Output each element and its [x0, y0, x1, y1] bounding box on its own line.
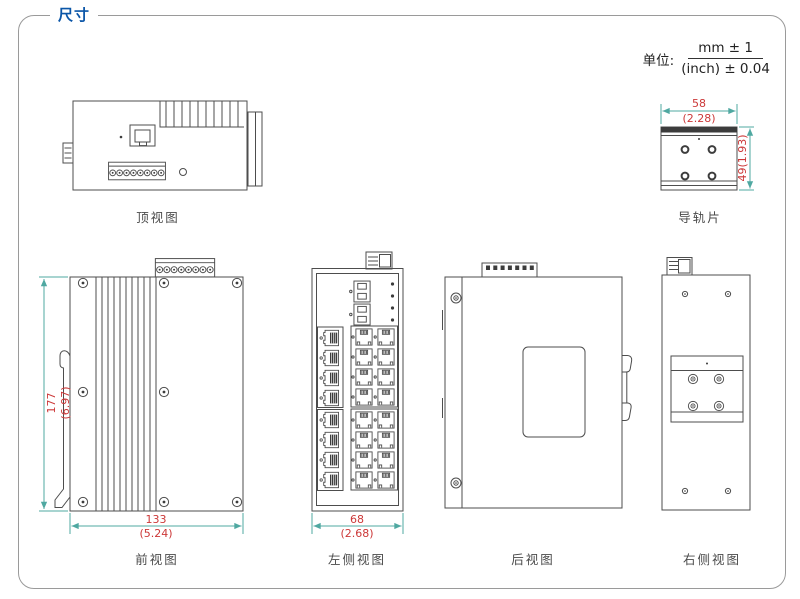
front-width-mm: 133: [146, 514, 167, 525]
panel-screws-front: [78, 278, 241, 506]
rail-plate-hole: [709, 173, 716, 180]
left-width-mm: 68: [350, 514, 364, 525]
left-view-drawing: [312, 252, 403, 534]
label-recess: [523, 347, 585, 437]
rear-view-body: [445, 277, 622, 508]
rail-width-inch: (2.28): [682, 113, 715, 124]
unit-denominator: (inch) ± 0.04: [681, 59, 770, 77]
console-port: [120, 125, 155, 146]
power-plug-top-right: [667, 258, 692, 276]
front-height-mm: 177: [45, 393, 59, 414]
ground-screw: [180, 169, 187, 176]
rail-plate-hole: [682, 146, 689, 153]
unit-fraction: mm ± 1 (inch) ± 0.04: [681, 40, 770, 77]
power-terminal-block-front: [155, 259, 214, 277]
right-view-label: 右侧视图: [683, 549, 741, 568]
rear-screw: [451, 478, 461, 488]
technical-drawing: [0, 0, 800, 599]
heatsink-fins-top: [160, 102, 244, 128]
rail-plate-hole: [709, 146, 716, 153]
left-view-label: 左侧视图: [328, 549, 386, 568]
rail-plate-hole: [682, 173, 689, 180]
section-title: 尺寸: [50, 6, 98, 24]
rear-view-drawing: [443, 263, 632, 508]
right-view-drawing: [662, 258, 750, 511]
din-clip-rear: [622, 356, 632, 421]
rail-height-text: 49(1.93): [736, 134, 750, 181]
front-width-inch: (5.24): [139, 528, 172, 539]
power-terminal-block-top: [109, 162, 166, 180]
top-view-drawing: [63, 101, 262, 190]
led-indicators: [391, 282, 394, 321]
left-width-inch: (2.68): [340, 528, 373, 539]
power-terminal-block-rear: [482, 263, 537, 277]
rail-mount-plate: [671, 356, 743, 422]
rj45-port-block-left-column: [318, 327, 344, 491]
right-view-body: [662, 275, 750, 510]
dimension-sheet: 尺寸 单位: mm ± 1 (inch) ± 0.04: [0, 0, 800, 599]
rail-plate-label: 导轨片: [678, 207, 722, 226]
unit-note: 单位: mm ± 1 (inch) ± 0.04: [643, 40, 770, 77]
rear-screw: [451, 293, 461, 303]
rail-width-mm: 58: [692, 98, 706, 109]
side-tab-left: [63, 143, 73, 163]
rail-height-dim: 49(1.93): [737, 128, 749, 188]
vent-holes: [682, 291, 730, 493]
front-height-dim: 177 (6.97): [46, 382, 72, 424]
front-height-inch: (6.97): [59, 386, 73, 419]
rear-view-label: 后视图: [511, 549, 555, 568]
top-view-label: 顶视图: [136, 207, 180, 226]
din-clip-front: [55, 351, 70, 508]
power-plug-top: [366, 252, 392, 269]
unit-label: 单位:: [643, 49, 675, 69]
rj45-port-block-right-grid: [351, 326, 398, 490]
heatsink-fins-front: [96, 278, 156, 511]
din-rail-edge-top: [248, 112, 262, 186]
front-view-label: 前视图: [135, 549, 179, 568]
sfp-slots: [350, 281, 371, 325]
unit-numerator: mm ± 1: [688, 40, 763, 59]
